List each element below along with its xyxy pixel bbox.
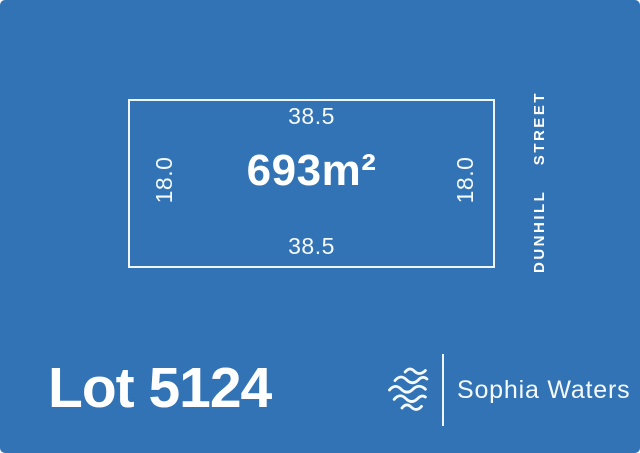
dimension-top: 38.5: [128, 103, 495, 130]
lot-title: Lot 5124: [48, 360, 271, 417]
lot-area-label: 693m²: [128, 146, 495, 196]
brand-name: Sophia Waters: [457, 376, 630, 405]
brand-divider: [442, 354, 444, 426]
brand-lockup: Sophia Waters: [383, 352, 630, 428]
waves-icon: [383, 365, 435, 415]
street-name-label: DUNHILL STREET: [529, 91, 549, 273]
dimension-left: 18.0: [152, 140, 176, 220]
dimension-right: 18.0: [453, 140, 477, 220]
lot-plan-canvas: 38.5 693m² 18.0 18.0 38.5 DUNHILL STREET…: [0, 0, 640, 453]
street-type: STREET: [531, 91, 548, 165]
street-name: DUNHILL: [531, 190, 548, 273]
dimension-bottom: 38.5: [128, 233, 495, 260]
